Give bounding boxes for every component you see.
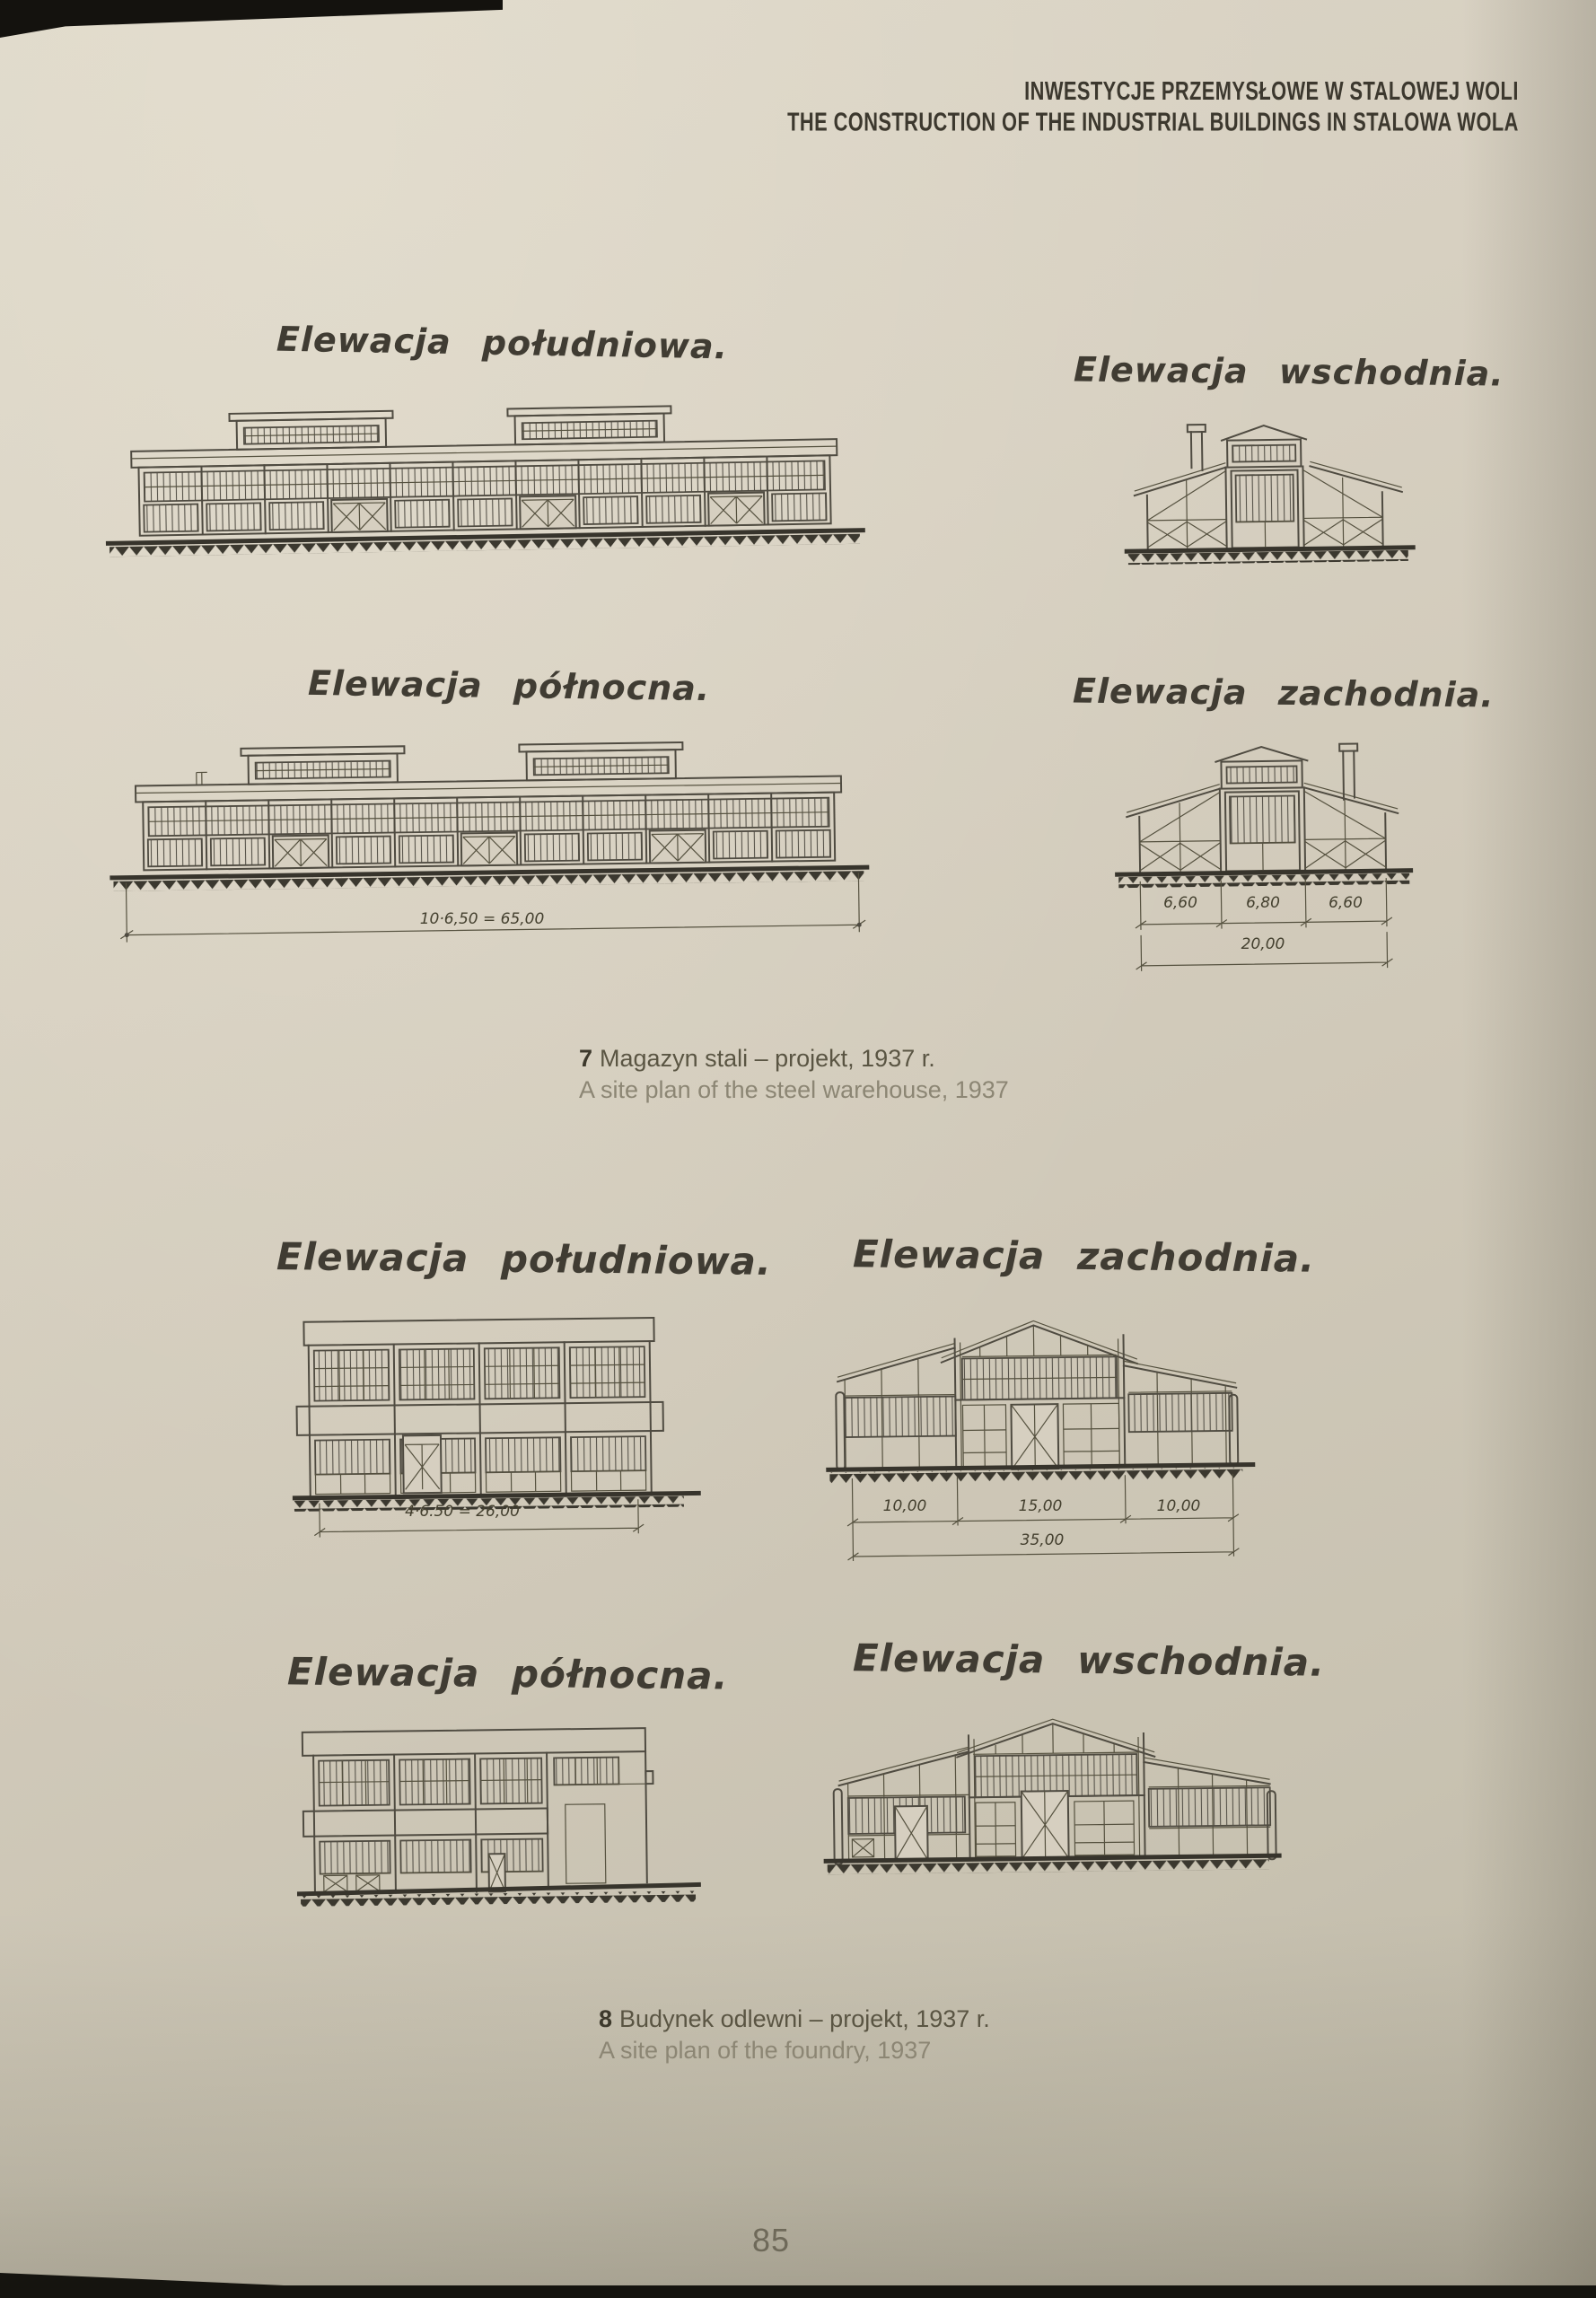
book-page-photo: INWESTYCJE PRZEMYSŁOWE W STALOWEJ WOLI T… bbox=[0, 0, 1596, 2298]
fig8-east-title: Elewacja wschodnia. bbox=[853, 1636, 1326, 1685]
fig7-caption-line-en: A site plan of the steel warehouse, 1937 bbox=[579, 1074, 1009, 1106]
fig7-south-title: Elewacja południowa. bbox=[276, 320, 729, 367]
fig8-south-title: Elewacja południowa. bbox=[276, 1234, 772, 1284]
header-line-en: THE CONSTRUCTION OF THE INDUSTRIAL BUILD… bbox=[787, 107, 1519, 138]
fig8-west-dim-1: 10,00 bbox=[883, 1497, 927, 1515]
fig7-west-elevation-drawing bbox=[1095, 732, 1431, 996]
fig8-north-title: Elewacja północna. bbox=[287, 1649, 729, 1697]
fig8-south-elevation-drawing bbox=[290, 1306, 724, 1572]
running-header: INWESTYCJE PRZEMYSŁOWE W STALOWEJ WOLI T… bbox=[787, 75, 1519, 137]
fig8-west-dim-total: 35,00 bbox=[1021, 1531, 1065, 1549]
fig7-west-dim-3: 6,60 bbox=[1329, 894, 1363, 912]
fig8-east-elevation-drawing bbox=[820, 1701, 1317, 1923]
fig7-east-title: Elewacja wschodnia. bbox=[1074, 349, 1504, 393]
fig8-west-dim-3: 10,00 bbox=[1157, 1497, 1201, 1515]
photo-dark-edge-bottom bbox=[0, 2285, 1596, 2298]
fig8-west-elevation-drawing bbox=[822, 1301, 1320, 1594]
right-shadow bbox=[1461, 0, 1596, 2298]
fig7-east-elevation-drawing bbox=[1110, 411, 1427, 595]
light-vignette bbox=[0, 0, 1596, 2298]
fig8-caption-line-pl: 8Budynek odlewni – projekt, 1937 r. bbox=[599, 2004, 990, 2035]
fig7-west-dim-total: 20,00 bbox=[1241, 935, 1285, 953]
fig7-north-title: Elewacja północna. bbox=[308, 663, 711, 708]
fig7-south-elevation-drawing bbox=[83, 395, 885, 589]
fig8-north-elevation-drawing bbox=[295, 1716, 729, 1928]
fig7-caption: 7Magazyn stali – projekt, 1937 r. A site… bbox=[579, 1043, 1009, 1106]
fig8-caption: 8Budynek odlewni – projekt, 1937 r. A si… bbox=[599, 2004, 990, 2066]
fig7-west-title: Elewacja zachodnia. bbox=[1073, 671, 1495, 715]
photo-dark-corner-top-left bbox=[0, 0, 503, 38]
fig8-caption-line-en: A site plan of the foundry, 1937 bbox=[599, 2035, 990, 2066]
fig8-south-dim-total: 4·6.50 = 26,00 bbox=[405, 1503, 520, 1521]
bottom-shadow bbox=[0, 1912, 1596, 2298]
fig7-west-dim-1: 6,60 bbox=[1163, 894, 1197, 912]
page-number: 85 bbox=[752, 2222, 790, 2259]
fig8-west-dim-2: 15,00 bbox=[1019, 1497, 1063, 1515]
fig7-caption-line-pl: 7Magazyn stali – projekt, 1937 r. bbox=[579, 1043, 1009, 1074]
fig8-west-title: Elewacja zachodnia. bbox=[853, 1232, 1316, 1280]
fig7-north-elevation-drawing bbox=[88, 732, 890, 968]
fig7-number: 7 bbox=[579, 1045, 592, 1072]
header-line-pl: INWESTYCJE PRZEMYSŁOWE W STALOWEJ WOLI bbox=[787, 75, 1519, 107]
fig7-north-total-dimension: 10·6,50 = 65,00 bbox=[420, 910, 545, 928]
fig8-number: 8 bbox=[599, 2005, 612, 2032]
fig7-west-dim-2: 6,80 bbox=[1246, 894, 1280, 912]
